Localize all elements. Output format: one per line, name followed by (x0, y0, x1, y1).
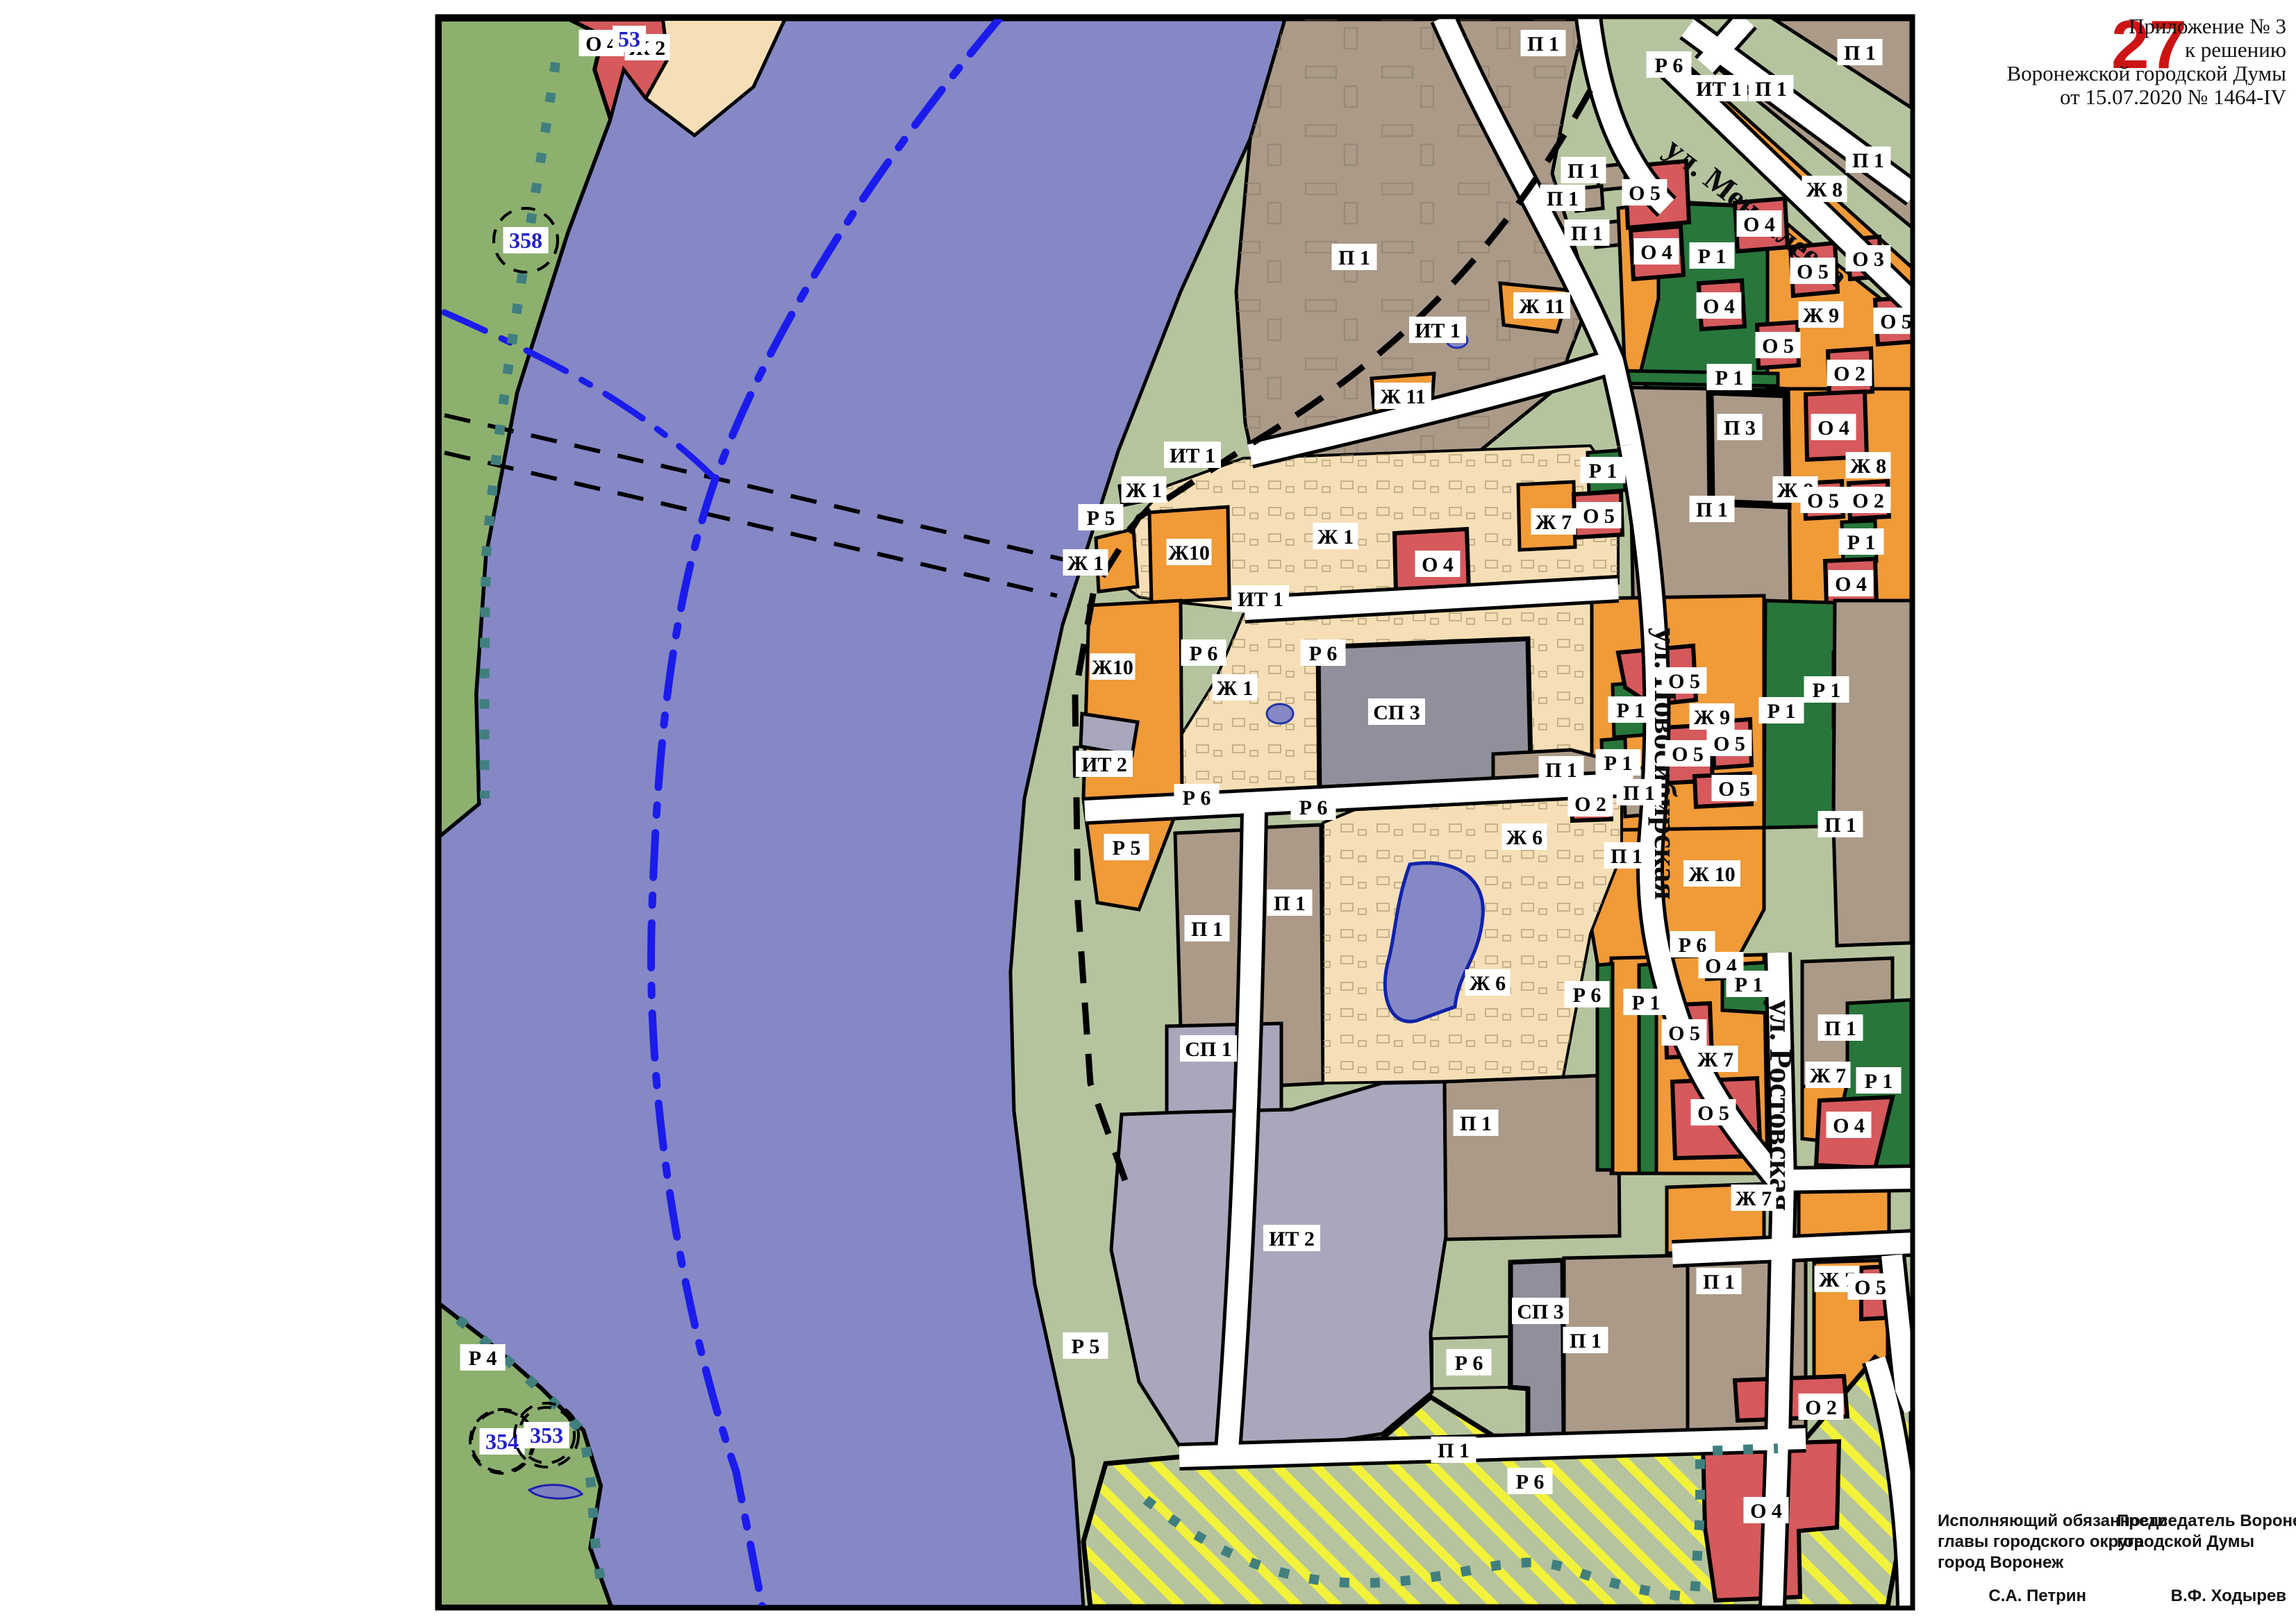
svg-text:П 1: П 1 (1755, 78, 1787, 101)
zone-label-О-4-107: О 4 (1744, 1497, 1789, 1523)
svg-text:О 5: О 5 (1583, 505, 1615, 528)
zone-label-ИТ-1-53: ИТ 1 (1232, 585, 1289, 612)
zone-label-Р-1-80: Р 1 (1608, 696, 1654, 723)
zone-label-П-1-17: П 1 (1540, 185, 1586, 211)
zone-label-П-1-71: П 1 (1604, 842, 1649, 869)
zone-label-Р-1-86: Р 1 (1727, 971, 1772, 997)
svg-text:О 4: О 4 (1833, 1114, 1865, 1137)
zone-label-О-5-41: О 5 (1577, 502, 1622, 528)
svg-text:О 5: О 5 (1668, 1022, 1700, 1045)
svg-text:СП 3: СП 3 (1517, 1300, 1564, 1323)
svg-text:Р 1: Р 1 (1865, 1070, 1893, 1093)
title-line-1: Приложение № 3 (2129, 14, 2286, 38)
zone-label-Р-5-49: Р 5 (1079, 504, 1124, 530)
zone-label-Р-5-7: Р 5 (1063, 1332, 1108, 1359)
zone-label-Ж-9-25: Ж 9 (1799, 301, 1844, 328)
zone-it2-small (1081, 714, 1138, 755)
zone-label-П-1-64: П 1 (1267, 889, 1313, 916)
zone-label-ИТ-1-45: ИТ 1 (1409, 317, 1466, 343)
zone-label-П-1-103: П 1 (1697, 1268, 1742, 1294)
svg-text:СП 3: СП 3 (1373, 701, 1420, 724)
svg-text:Ж 8: Ж 8 (1850, 455, 1886, 478)
svg-text:Р 6: Р 6 (1183, 787, 1211, 810)
zone-label-О-2-106: О 2 (1799, 1393, 1844, 1420)
svg-text:П 1: П 1 (1460, 1112, 1492, 1135)
zone-label-П-1-99: П 1 (1563, 1327, 1608, 1353)
zone-label-СП-1-65: СП 1 (1180, 1035, 1237, 1062)
svg-text:Р 1: Р 1 (1847, 531, 1876, 554)
sig-right-role-2: городской Думы (2117, 1532, 2254, 1551)
svg-text:Р 6: Р 6 (1655, 54, 1683, 77)
zone-label-ИТ-1-47: ИТ 1 (1164, 442, 1221, 468)
zone-label-Ж-1-48: Ж 1 (1122, 476, 1167, 503)
svg-text:О 5: О 5 (1718, 778, 1750, 801)
zone-label-Ж-8-34: Ж 8 (1846, 452, 1891, 478)
zone-it2-big (1111, 1082, 1446, 1451)
sig-right-role-1: Председатель Воронежской (2117, 1512, 2296, 1530)
zone-label-П-1-9: П 1 (1521, 30, 1566, 56)
zone-label-ИТ-2-57: ИТ 2 (1076, 751, 1133, 777)
svg-text:П 1: П 1 (1696, 499, 1728, 521)
svg-text:Ж 7: Ж 7 (1697, 1048, 1733, 1071)
svg-text:П 1: П 1 (1191, 918, 1223, 941)
svg-text:П 1: П 1 (1338, 246, 1370, 269)
svg-text:П 1: П 1 (1824, 814, 1856, 837)
svg-text:О 2: О 2 (1833, 362, 1865, 385)
zone-label-О-3-24: О 3 (1846, 245, 1891, 271)
svg-text:Ж 1: Ж 1 (1067, 552, 1104, 575)
zone-label-Ж-11-46: Ж 11 (1374, 383, 1431, 409)
svg-text:П 1: П 1 (1571, 222, 1603, 245)
zone-label-Р-1-92: Р 1 (1856, 1067, 1902, 1094)
zone-label-Ж-6-66: Ж 6 (1502, 823, 1547, 850)
svg-text:П 1: П 1 (1438, 1439, 1470, 1462)
svg-text:Ж 6: Ж 6 (1470, 972, 1506, 995)
svg-text:О 5: О 5 (1629, 182, 1661, 205)
sig-left-role-3: город Воронеж (1938, 1553, 2064, 1572)
zone-label-Ж-7-91: Ж 7 (1806, 1062, 1851, 1088)
svg-text:П 1: П 1 (1567, 160, 1599, 183)
svg-text:Ж 7: Ж 7 (1536, 511, 1572, 534)
zone-p1-bc-top (1445, 1075, 1620, 1239)
svg-text:О 5: О 5 (1880, 310, 1912, 333)
zone-label-Р-6-100: Р 6 (1447, 1349, 1492, 1375)
svg-text:П 1: П 1 (1527, 33, 1559, 56)
svg-text:53: 53 (618, 26, 640, 51)
svg-text:ИТ 1: ИТ 1 (1696, 78, 1742, 101)
svg-text:Р 1: Р 1 (1735, 973, 1763, 996)
zone-label-Ж10-51: Ж10 (1167, 539, 1212, 565)
svg-text:О 2: О 2 (1574, 793, 1606, 816)
svg-text:Р 4: Р 4 (469, 1347, 497, 1370)
svg-text:Р 6: Р 6 (1190, 642, 1218, 665)
svg-text:П 1: П 1 (1703, 1271, 1735, 1294)
svg-text:О 4: О 4 (1703, 295, 1735, 318)
svg-text:О 5: О 5 (1713, 733, 1745, 755)
svg-text:Р 6: Р 6 (1573, 984, 1602, 1007)
sig-left-role-2: главы городского округа (1938, 1532, 2144, 1551)
zone-label-СП-3-55: СП 3 (1368, 698, 1425, 725)
zone-label-О-5-93: О 5 (1691, 1099, 1736, 1125)
zone-label-П-1-16: П 1 (1561, 157, 1606, 183)
svg-text:О 5: О 5 (1762, 335, 1794, 358)
zone-label-Р-1-29: Р 1 (1707, 364, 1752, 390)
svg-text:П 1: П 1 (1623, 782, 1655, 805)
svg-text:Ж10: Ж10 (1092, 656, 1133, 679)
svg-text:ИТ 2: ИТ 2 (1081, 753, 1127, 776)
zone-label-О-5-36: О 5 (1801, 487, 1846, 513)
zone-label-О-4-94: О 4 (1827, 1112, 1872, 1138)
title-line-4: от 15.07.2020 № 1464-IV (2060, 85, 2287, 109)
zone-label-Ж-7-95: Ж 7 (1731, 1184, 1777, 1211)
zone-label-Ж-9-74: Ж 9 (1690, 703, 1735, 730)
zone-label-Р-6-58: Р 6 (1181, 639, 1226, 666)
zone-label-Р-6-61: Р 6 (1291, 794, 1336, 820)
svg-text:Ж 6: Ж 6 (1506, 826, 1542, 849)
svg-text:О 5: О 5 (1697, 1102, 1729, 1125)
zone-label-П-1-13: П 1 (1838, 39, 1883, 65)
svg-text:Ж 1: Ж 1 (1126, 479, 1162, 502)
svg-text:О 5: О 5 (1672, 743, 1704, 766)
zone-label-Ж-1-54: Ж 1 (1213, 674, 1258, 701)
zone-label-Ж-8-15: Ж 8 (1802, 176, 1847, 202)
zone-label-Ж-6-67: Ж 6 (1465, 969, 1511, 996)
zone-label-Р-5-62: Р 5 (1104, 834, 1149, 860)
svg-text:Ж 1: Ж 1 (1317, 526, 1354, 549)
zone-label-Р-1-38: Р 1 (1839, 528, 1884, 555)
zone-label-О-4-43: О 4 (1415, 551, 1461, 577)
svg-text:П 3: П 3 (1724, 417, 1756, 440)
svg-text:Ж 8: Ж 8 (1806, 178, 1842, 201)
svg-text:П 1: П 1 (1824, 1017, 1856, 1040)
zone-label-О-5-75: О 5 (1665, 740, 1711, 767)
svg-text:Р 5: Р 5 (1113, 837, 1141, 860)
zone-label-П-1-63: П 1 (1185, 915, 1230, 941)
svg-text:П 1: П 1 (1852, 149, 1884, 172)
zone-label-О-5-23: О 5 (1790, 258, 1836, 284)
svg-text:Ж 7: Ж 7 (1810, 1064, 1846, 1087)
zone-label-Р-1-21: Р 1 (1690, 242, 1735, 269)
svg-text:Ж 11: Ж 11 (1519, 295, 1565, 318)
pond-small (1267, 704, 1293, 723)
svg-text:СП 1: СП 1 (1185, 1038, 1232, 1061)
svg-text:Р 6: Р 6 (1516, 1471, 1545, 1493)
zone-label-О-4-22: О 4 (1737, 210, 1782, 237)
zone-label-П-3-31: П 3 (1717, 414, 1763, 440)
street-name-2: ул. Ростовская (1763, 1000, 1799, 1211)
svg-text:П 1: П 1 (1545, 759, 1577, 782)
zone-label-П-1-32: П 1 (1690, 496, 1735, 522)
zone-label-Ж10-56: Ж10 (1090, 653, 1135, 680)
zone-label-О-5-89: О 5 (1662, 1019, 1707, 1046)
zone-label-О-4-33: О 4 (1811, 414, 1856, 440)
svg-text:358: 358 (509, 228, 542, 253)
svg-text:О 5: О 5 (1668, 670, 1700, 693)
svg-text:Р 1: Р 1 (1767, 700, 1796, 723)
zone-label-О-4-20: О 4 (1634, 238, 1679, 265)
svg-text:Р 1: Р 1 (1715, 367, 1744, 390)
zone-label-Р-1-40: Р 1 (1581, 457, 1626, 483)
zone-label-Ж-7-90: Ж 7 (1693, 1046, 1738, 1072)
svg-text:О 5: О 5 (1797, 260, 1829, 283)
svg-text:Р 1: Р 1 (1589, 460, 1617, 483)
zone-label-Р-6-60: Р 6 (1174, 784, 1220, 810)
zone-label-Р-1-77: Р 1 (1759, 697, 1804, 723)
zone-label-Ж-10-83: Ж 10 (1683, 860, 1740, 887)
zone-label-П-1-18: П 1 (1565, 219, 1610, 246)
zone-label-О-5-76: О 5 (1707, 730, 1752, 756)
zone-label-О-5-19: О 5 (1622, 179, 1667, 206)
svg-text:Р 5: Р 5 (1087, 507, 1115, 530)
zone-label-О-2-28: О 2 (1827, 360, 1872, 386)
svg-text:О 4: О 4 (1640, 241, 1672, 264)
svg-text:Ж 11: Ж 11 (1380, 385, 1426, 408)
zone-label-О-4-39: О 4 (1829, 570, 1874, 596)
svg-text:Ж 10: Ж 10 (1688, 863, 1735, 886)
svg-text:О 3: О 3 (1852, 248, 1884, 271)
svg-text:О 4: О 4 (1750, 1500, 1782, 1523)
svg-text:Р 1: Р 1 (1604, 752, 1633, 775)
svg-text:Р 1: Р 1 (1813, 679, 1841, 702)
svg-text:П 1: П 1 (1570, 1330, 1602, 1353)
zone-label-Р-1-81: Р 1 (1596, 749, 1641, 776)
sig-right-name: В.Ф. Ходырев (2171, 1587, 2286, 1605)
svg-text:О 5: О 5 (1807, 489, 1839, 512)
zone-label-Ж-1-50: Ж 1 (1063, 549, 1108, 576)
svg-text:О 4: О 4 (1743, 213, 1775, 236)
zone-label-Р-6-72: Р 6 (1565, 981, 1610, 1007)
zone-label-Р-1-78: Р 1 (1804, 676, 1849, 703)
svg-text:Р 1: Р 1 (1632, 991, 1661, 1014)
zone-label-О-5-27: О 5 (1756, 332, 1801, 358)
zone-label-П-1-8: П 1 (1332, 244, 1377, 270)
zone-label-О-5-73: О 5 (1662, 667, 1707, 694)
zone-label-П-1-82: П 1 (1818, 811, 1863, 837)
svg-text:О 5: О 5 (1854, 1276, 1886, 1299)
zone-r1-strip (1624, 371, 1778, 386)
zone-label-П-1-88: П 1 (1818, 1014, 1863, 1041)
sig-left-name: С.А. Петрин (1988, 1587, 2086, 1605)
svg-text:О 2: О 2 (1852, 489, 1884, 512)
svg-text:Ж10: Ж10 (1168, 542, 1210, 564)
zone-label-О-2-37: О 2 (1846, 487, 1891, 513)
zone-label-О-2-68: О 2 (1568, 790, 1613, 817)
zone-label-Р-6-10: Р 6 (1647, 51, 1692, 78)
svg-text:Ж 1: Ж 1 (1217, 677, 1253, 700)
zone-label-ИТ-2-96: ИТ 2 (1263, 1225, 1320, 1251)
zone-label-Ж-1-52: Ж 1 (1313, 523, 1358, 549)
zone-label-Р-6-102: Р 6 (1508, 1468, 1553, 1494)
svg-text:ИТ 1: ИТ 1 (1170, 444, 1215, 467)
zone-label-О-5-105: О 5 (1848, 1273, 1893, 1300)
title-line-3: Воронежской городской Думы (2006, 61, 2286, 85)
svg-text:П 1: П 1 (1274, 892, 1306, 915)
zone-label-П-1-70: П 1 (1617, 779, 1662, 805)
zone-label-Р-1-87: Р 1 (1624, 989, 1669, 1015)
zoning-map-canvas: ул. Менделееваул. Новосибирскаяул. Росто… (0, 0, 2296, 1624)
svg-text:Ж 7: Ж 7 (1736, 1187, 1772, 1210)
svg-text:Ж 9: Ж 9 (1694, 706, 1730, 729)
svg-text:П 1: П 1 (1844, 42, 1876, 65)
zone-label-Ж-7-42: Ж 7 (1531, 508, 1577, 535)
zone-label-Р-6-59: Р 6 (1301, 639, 1346, 666)
zone-label-Ж-11-44: Ж 11 (1513, 292, 1570, 319)
zone-label-ИТ-1-11: ИТ 1 (1690, 75, 1747, 101)
zone-label-О-4-30: О 4 (1697, 292, 1742, 319)
svg-text:Р 5: Р 5 (1072, 1335, 1100, 1358)
zone-label-СП-3-98: СП 3 (1512, 1298, 1569, 1324)
map-area: ул. Менделееваул. Новосибирскаяул. Росто… (438, 17, 1919, 1608)
zone-label-П-1-12: П 1 (1749, 75, 1794, 101)
svg-text:Р 6: Р 6 (1455, 1352, 1483, 1375)
svg-text:П 1: П 1 (1547, 187, 1579, 210)
svg-text:ИТ 1: ИТ 1 (1415, 319, 1461, 342)
svg-text:О 4: О 4 (1835, 573, 1867, 596)
svg-text:О 4: О 4 (1817, 417, 1849, 440)
zone-label-П-1-69: П 1 (1539, 756, 1584, 782)
zone-p1-east-big (1833, 601, 1911, 946)
svg-text:Р 1: Р 1 (1698, 245, 1727, 268)
zone-label-Р-4-6: Р 4 (460, 1344, 506, 1371)
zone-label-О-5-79: О 5 (1712, 775, 1757, 801)
svg-text:ИТ 1: ИТ 1 (1238, 588, 1283, 611)
svg-text:О 2: О 2 (1805, 1396, 1837, 1419)
svg-text:Р 1: Р 1 (1617, 699, 1645, 722)
zone-label-53-2: 53 (613, 26, 646, 52)
svg-text:О 4: О 4 (1422, 553, 1454, 576)
svg-text:Р 6: Р 6 (1299, 796, 1328, 819)
zoning-map-sheet: ул. Менделееваул. Новосибирскаяул. Росто… (0, 0, 2296, 1624)
svg-text:Р 6: Р 6 (1309, 642, 1338, 665)
svg-text:П 1: П 1 (1611, 845, 1642, 868)
svg-text:Ж 9: Ж 9 (1803, 304, 1839, 327)
zone-label-П-1-97: П 1 (1454, 1110, 1499, 1136)
title-line-2: к решению (2185, 37, 2286, 62)
zone-label-П-1-14: П 1 (1846, 147, 1891, 173)
svg-text:353: 353 (530, 1423, 563, 1448)
zone-label-П-1-101: П 1 (1431, 1437, 1476, 1463)
svg-text:ИТ 2: ИТ 2 (1269, 1228, 1315, 1250)
